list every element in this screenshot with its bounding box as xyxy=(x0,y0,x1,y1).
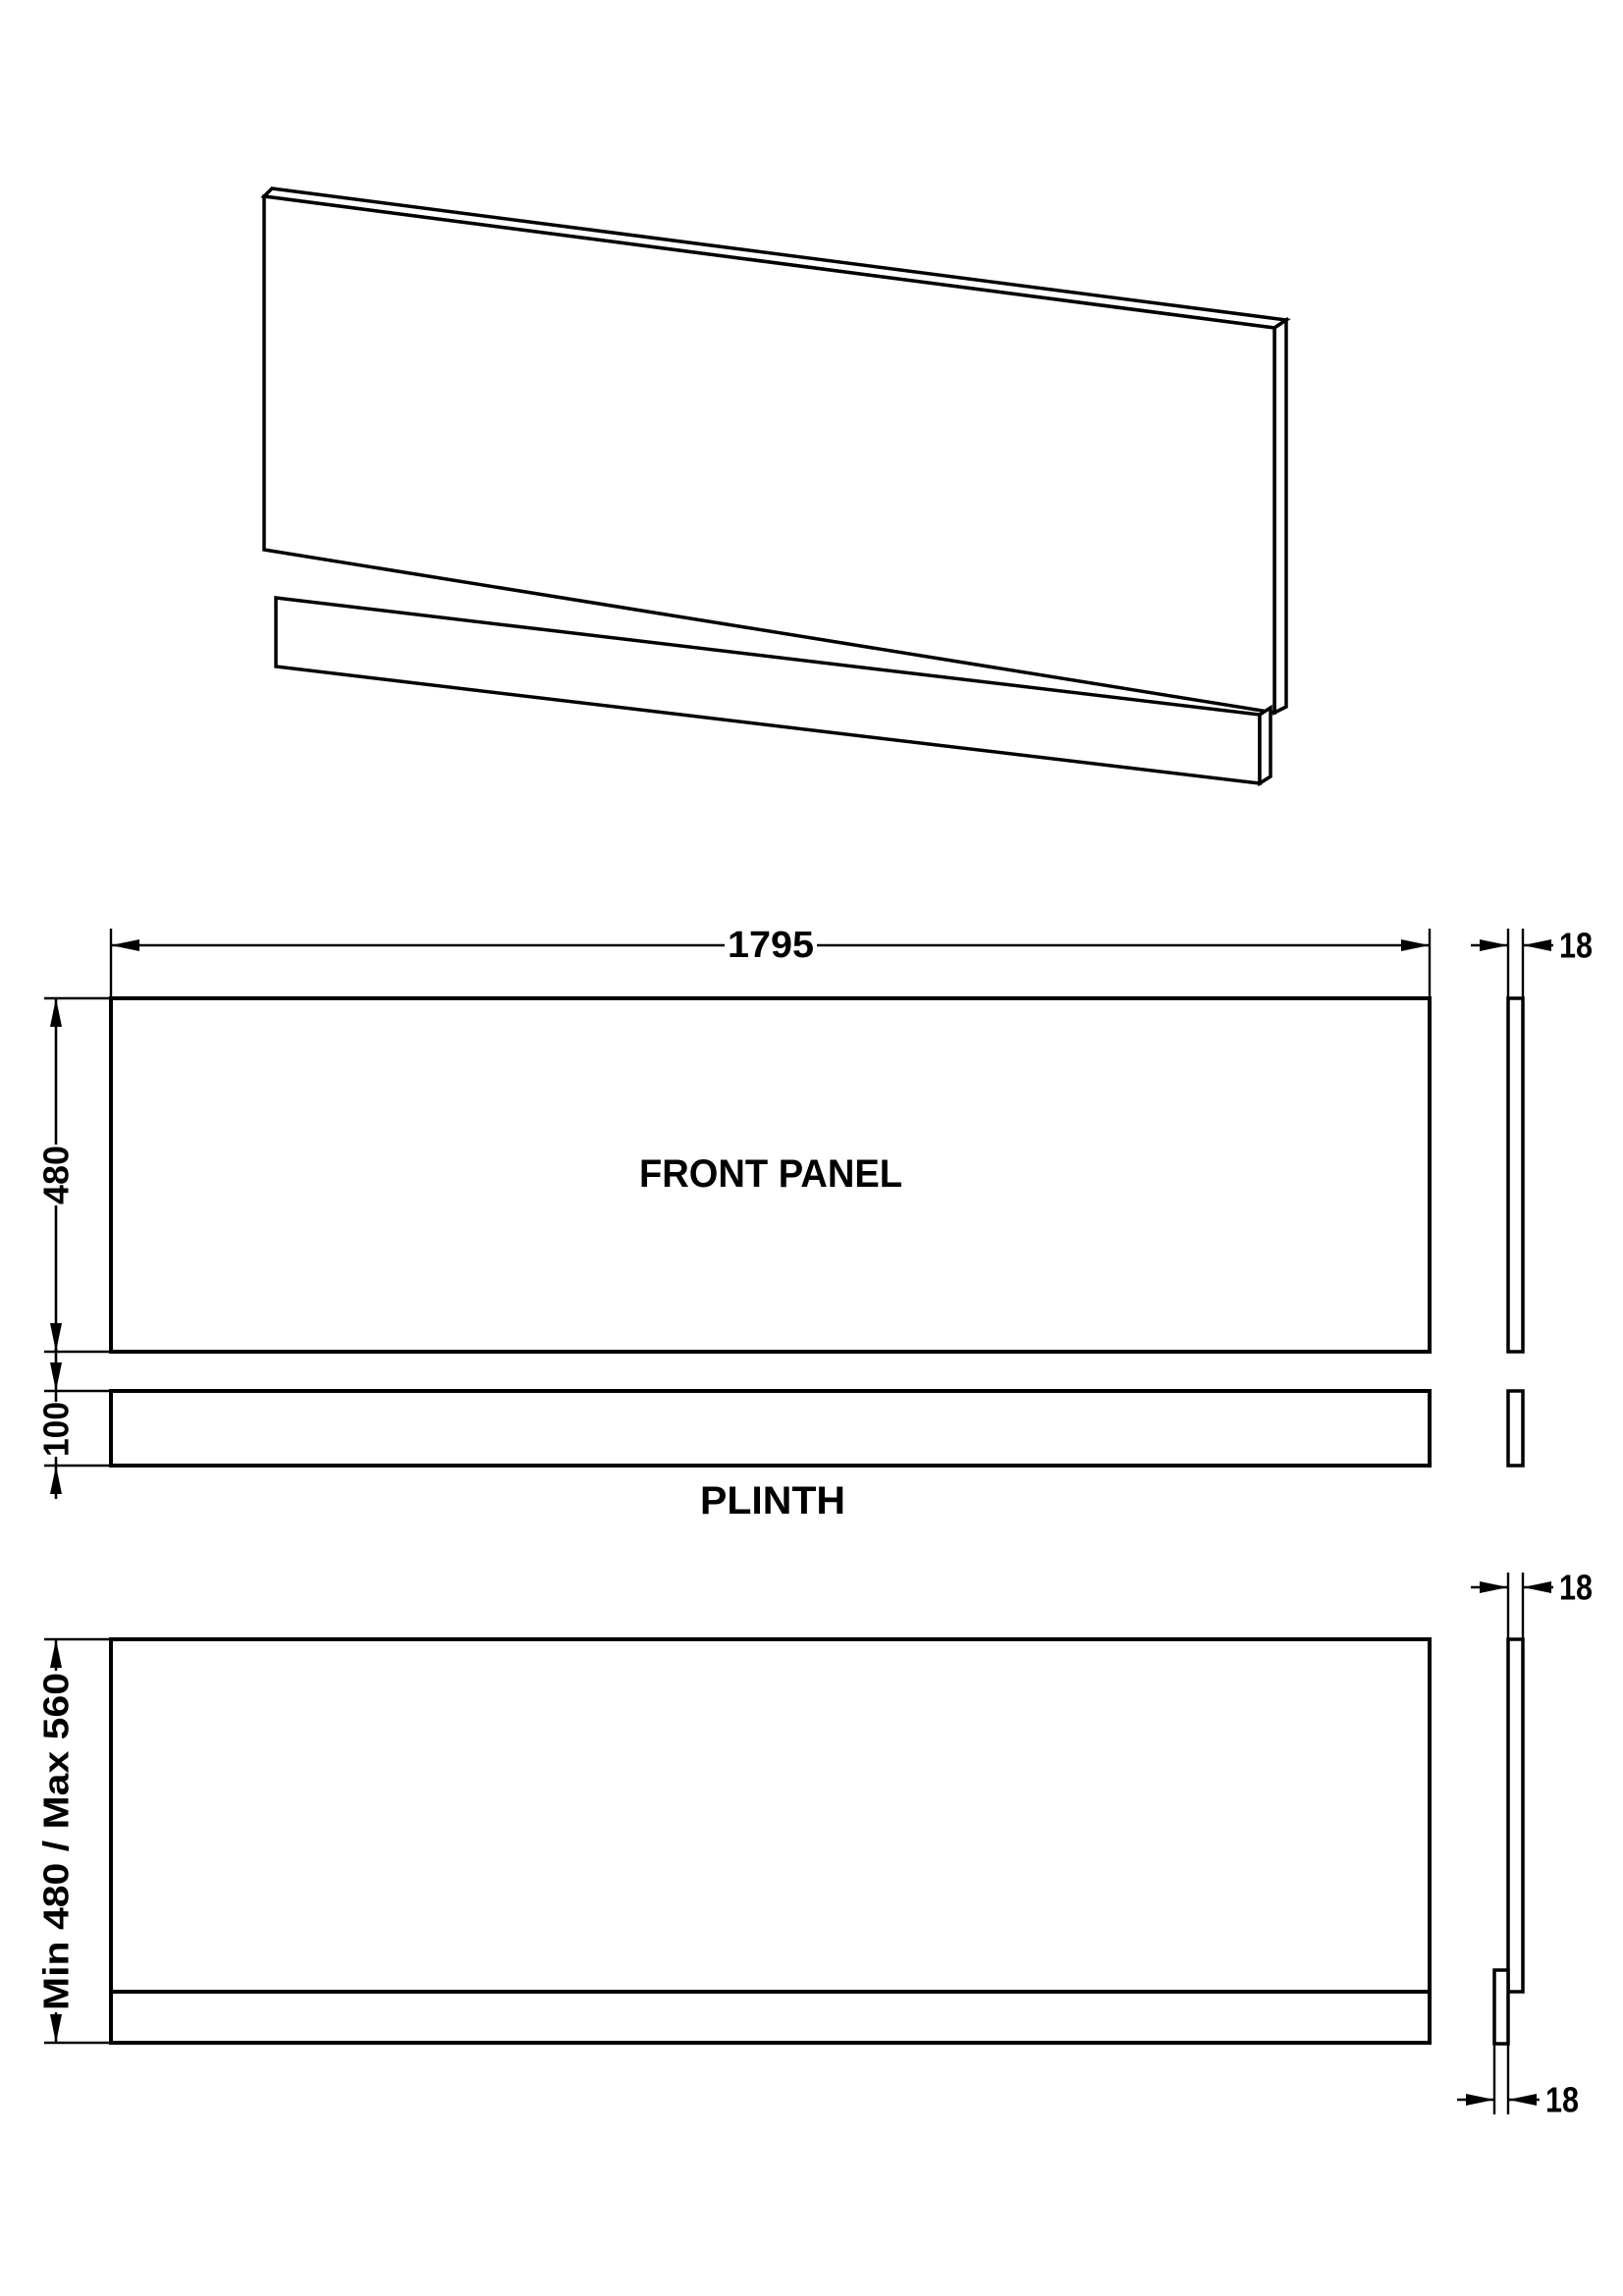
dim-top-thickness-arrow-right xyxy=(1523,1581,1551,1593)
dim-bottom-thickness-arrow-left xyxy=(1466,2094,1494,2106)
plinth-edge-view xyxy=(1508,1391,1523,1466)
iso-plinth-right-face xyxy=(1260,708,1271,783)
plinth-label: PLINTH xyxy=(700,1479,845,1522)
dim-thickness-label: 18 xyxy=(1559,926,1593,966)
iso-view xyxy=(264,188,1286,783)
dim-range-arrow-bottom xyxy=(50,2014,62,2043)
dim-plinth-arrow-bottom xyxy=(50,1466,62,1494)
dim-bottom-thickness-arrow-right xyxy=(1508,2094,1537,2106)
dim-plinth-height-label: 100 xyxy=(36,1402,77,1457)
technical-drawing-page: 1795 480 FRONT PANEL 100 PLINTH 18 xyxy=(0,0,1623,2296)
dim-plinth-arrow-top xyxy=(50,1362,62,1391)
plinth-outline xyxy=(111,1391,1430,1466)
dim-height-arrow-bottom xyxy=(50,1323,62,1352)
dim-width-label: 1795 xyxy=(728,925,814,966)
dim-height-label: 480 xyxy=(36,1146,77,1204)
dim-thickness-arrow-left xyxy=(1480,939,1508,951)
installed-outline xyxy=(111,1639,1430,2043)
installed-view: Min 480 / Max 560 18 18 xyxy=(36,1568,1594,2120)
panel-edge-view xyxy=(1508,998,1523,1352)
front-panel-label: FRONT PANEL xyxy=(639,1152,902,1196)
dim-range-label: Min 480 / Max 560 xyxy=(36,1673,77,2010)
installed-panel-edge-view xyxy=(1508,1639,1523,1992)
dim-width-arrow-right xyxy=(1401,939,1430,951)
dim-height-arrow-top xyxy=(50,998,62,1027)
dim-bottom-thickness-label: 18 xyxy=(1545,2080,1579,2120)
dim-thickness-arrow-right xyxy=(1523,939,1551,951)
front-panel-view: 1795 480 FRONT PANEL 100 PLINTH 18 xyxy=(36,925,1594,1522)
installed-plinth-edge-view xyxy=(1494,1970,1508,2044)
dim-width-arrow-left xyxy=(111,939,139,951)
dim-range-arrow-top xyxy=(50,1639,62,1668)
dim-top-thickness-label: 18 xyxy=(1559,1568,1593,1608)
iso-panel-right-face xyxy=(1274,320,1286,713)
dim-top-thickness-arrow-left xyxy=(1480,1581,1508,1593)
